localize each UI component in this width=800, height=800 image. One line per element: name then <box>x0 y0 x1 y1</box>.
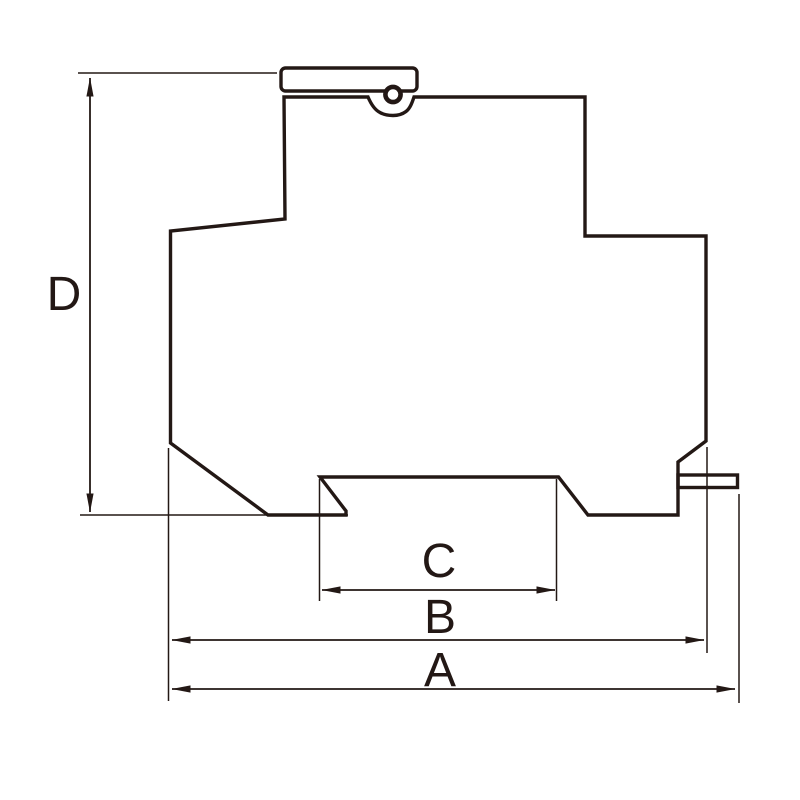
dim-label-b: B <box>424 591 456 644</box>
extension-lines-group <box>78 73 739 703</box>
dim-label-a: A <box>424 644 456 697</box>
drawing-canvas: D C B A <box>0 0 800 800</box>
latch-roller-hole <box>385 87 400 102</box>
dimension-drawing-svg: D C B A <box>0 0 800 800</box>
dimension-labels-group: D C B A <box>47 268 457 697</box>
device-outline-group <box>171 68 738 515</box>
dim-label-c: C <box>422 535 457 588</box>
dim-label-d: D <box>47 268 82 321</box>
dimension-lines-group <box>90 78 735 689</box>
device-body-outline <box>171 97 707 515</box>
